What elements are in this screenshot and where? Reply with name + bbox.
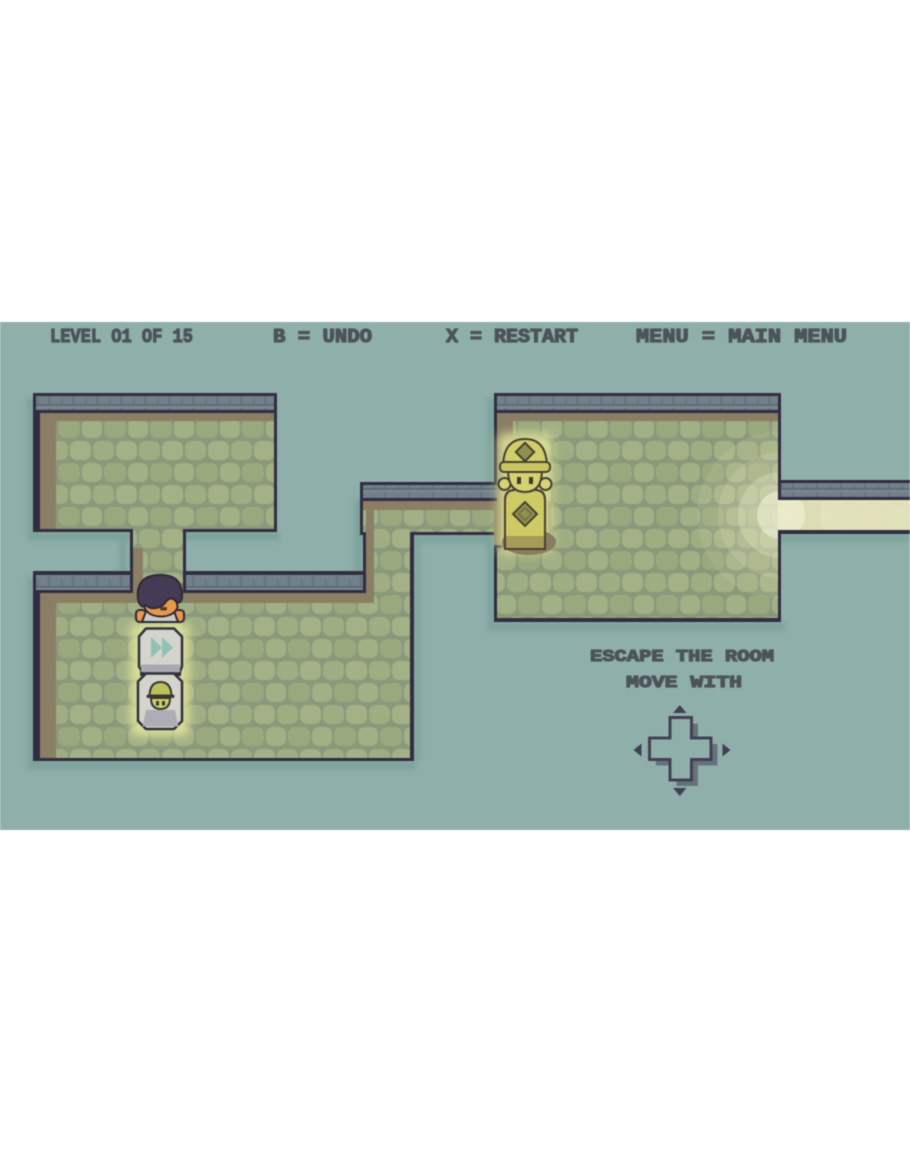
- svg-text:X = RESTART: X = RESTART: [446, 326, 578, 348]
- svg-text:B = UNDO: B = UNDO: [273, 326, 372, 348]
- svg-text:MOVE WITH: MOVE WITH: [626, 674, 742, 693]
- svg-text:MENU = MAIN MENU: MENU = MAIN MENU: [636, 326, 847, 348]
- svg-text:LEVEL O1 OF 15: LEVEL O1 OF 15: [50, 326, 193, 348]
- svg-text:ESCAPE THE ROOM: ESCAPE THE ROOM: [590, 648, 774, 667]
